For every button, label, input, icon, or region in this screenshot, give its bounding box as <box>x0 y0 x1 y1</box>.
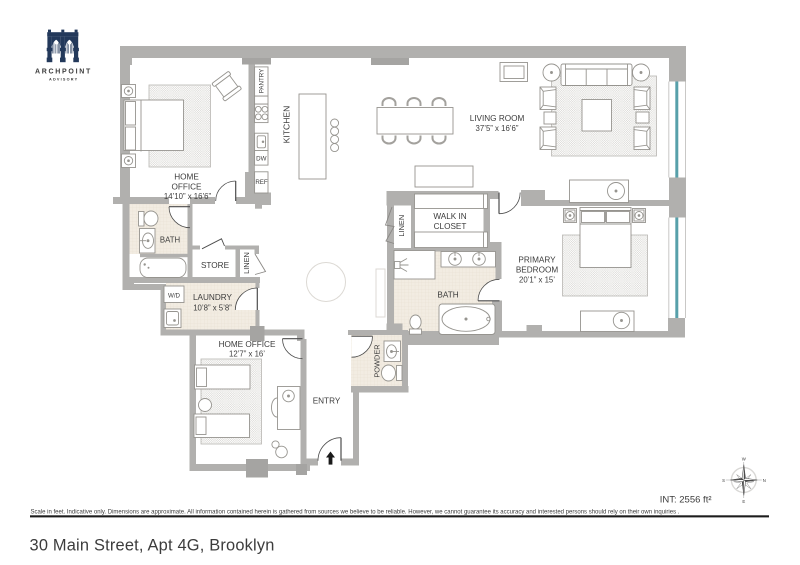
svg-text:HOME: HOME <box>174 173 199 182</box>
svg-text:N: N <box>763 478 766 483</box>
svg-text:BATH: BATH <box>437 291 458 300</box>
svg-text:ARCHPOINT: ARCHPOINT <box>35 69 92 76</box>
svg-text:CLOSET: CLOSET <box>434 222 467 231</box>
svg-text:WALK IN: WALK IN <box>433 212 466 221</box>
svg-text:BATH: BATH <box>160 236 180 245</box>
svg-text:14’10” x 16’6”: 14’10” x 16’6” <box>164 192 212 201</box>
svg-text:S: S <box>722 478 725 483</box>
svg-text:W: W <box>742 457 747 462</box>
svg-text:LINEN: LINEN <box>242 252 251 274</box>
svg-text:LINEN: LINEN <box>397 215 406 237</box>
svg-text:BEDROOM: BEDROOM <box>516 266 558 275</box>
svg-text:ADVISORY: ADVISORY <box>49 77 78 81</box>
svg-text:12’7” x 16’: 12’7” x 16’ <box>229 350 265 359</box>
svg-text:10’8” x 5’8”: 10’8” x 5’8” <box>193 304 232 313</box>
svg-text:37’5” x 16’6”: 37’5” x 16’6” <box>476 124 519 133</box>
svg-text:LIVING ROOM: LIVING ROOM <box>470 114 525 123</box>
svg-text:ENTRY: ENTRY <box>313 397 341 406</box>
svg-text:STORE: STORE <box>201 261 230 270</box>
svg-text:E: E <box>742 499 745 504</box>
svg-text:W/D: W/D <box>168 293 181 300</box>
svg-text:HOME OFFICE: HOME OFFICE <box>219 340 276 349</box>
svg-text:POWDER: POWDER <box>373 344 382 377</box>
svg-text:INT: 2556 ft²: INT: 2556 ft² <box>660 495 712 506</box>
svg-text:KITCHEN: KITCHEN <box>282 106 292 144</box>
svg-text:OFFICE: OFFICE <box>171 183 202 192</box>
svg-text:PRIMARY: PRIMARY <box>518 256 556 265</box>
svg-text:30 Main Street, Apt 4G, Brookl: 30 Main Street, Apt 4G, Brooklyn <box>30 537 275 555</box>
svg-text:DW: DW <box>256 156 266 163</box>
svg-text:REF: REF <box>255 179 268 186</box>
svg-text:20’1” x 15’: 20’1” x 15’ <box>519 276 555 285</box>
svg-text:LAUNDRY: LAUNDRY <box>193 293 233 302</box>
svg-text:PANTRY: PANTRY <box>259 69 266 94</box>
svg-text:Scale in feet. Indicative only: Scale in feet. Indicative only. Dimensio… <box>31 510 680 516</box>
